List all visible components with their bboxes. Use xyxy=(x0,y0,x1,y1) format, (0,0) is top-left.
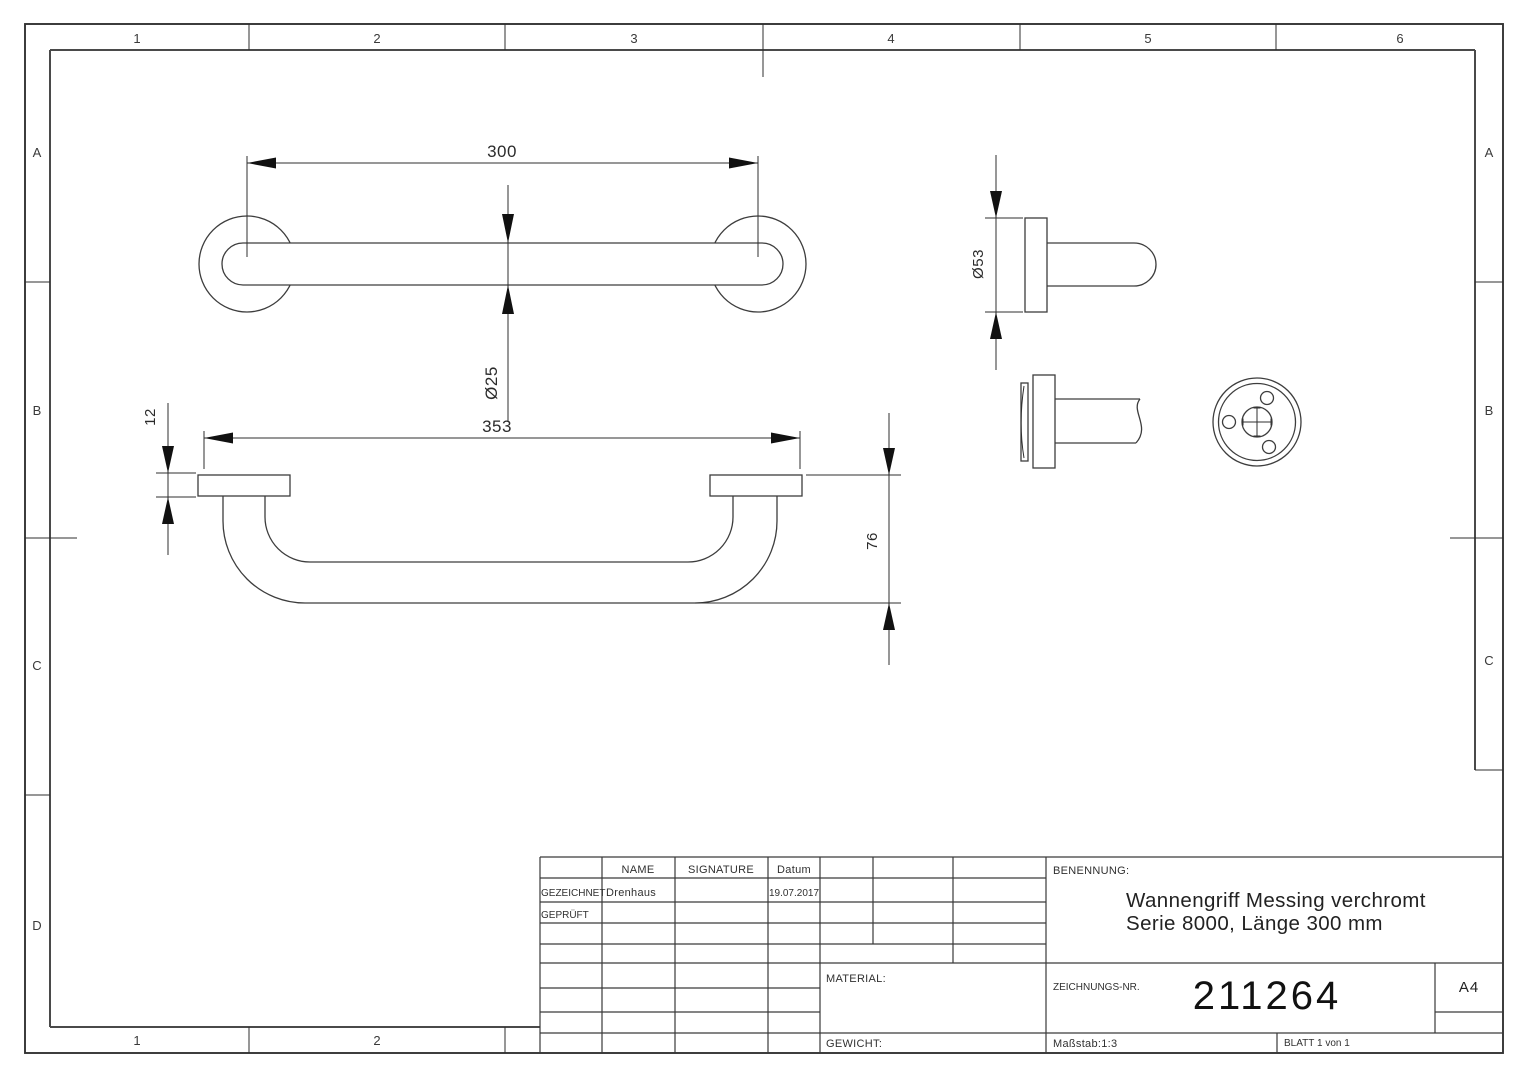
title-block: NAME SIGNATURE Datum GEZEICHNET Drenhaus… xyxy=(540,857,1503,1053)
drawing-number: 211264 xyxy=(1193,974,1342,1018)
dimension-300: 300 xyxy=(247,142,758,257)
zone-label-right-c: C xyxy=(1484,653,1493,668)
flange-body xyxy=(1033,375,1055,468)
left-wall-plate xyxy=(198,475,290,496)
zone-label-top-5: 5 xyxy=(1144,31,1151,46)
arrow-down xyxy=(162,446,174,473)
part-title-line2: Serie 8000, Länge 300 mm xyxy=(1126,912,1383,935)
dimension-text-300: 300 xyxy=(487,142,517,161)
zone-label-left-c: C xyxy=(32,658,41,673)
col-header-signature: SIGNATURE xyxy=(688,864,754,876)
drawing-no-label: ZEICHNUNGS-NR. xyxy=(1053,982,1140,993)
zone-label-top-6: 6 xyxy=(1396,31,1403,46)
phillips-cross-icon xyxy=(1243,408,1271,436)
title-block-vlines xyxy=(602,857,1435,1053)
mount-hole-3 xyxy=(1263,441,1276,454)
dimension-76: 76 xyxy=(695,413,901,665)
benennung-label: BENENNUNG: xyxy=(1053,865,1129,877)
row-checked-label: GEPRÜFT xyxy=(541,909,589,921)
arrow-up xyxy=(990,312,1002,339)
col-header-date: Datum xyxy=(777,864,811,876)
zone-label-right-b: B xyxy=(1485,403,1494,418)
arrow-down xyxy=(990,191,1002,218)
grab-bar-body xyxy=(222,243,783,285)
dimension-text-12: 12 xyxy=(142,408,159,426)
drawing-sheet: 1 2 3 4 5 6 1 2 A B C D A B C 300 Ø25 xyxy=(0,0,1528,1080)
row-drawn-name: Drenhaus xyxy=(606,887,656,899)
dimension-text-dia25: Ø25 xyxy=(482,366,501,400)
arrow-right xyxy=(771,433,800,444)
title-block-outline xyxy=(540,857,1503,1053)
extension-lines-12 xyxy=(156,473,196,497)
mount-hole-1 xyxy=(1261,392,1274,405)
arrow-down xyxy=(502,214,514,243)
dimension-12: 12 xyxy=(142,403,196,555)
dimension-text-76: 76 xyxy=(864,532,881,550)
scale-label: Maßstab:1:3 xyxy=(1053,1038,1117,1050)
arrow-up xyxy=(162,497,174,524)
bar-end-side xyxy=(1047,243,1156,286)
dimension-dia25: Ø25 xyxy=(482,185,514,422)
arrow-up xyxy=(883,603,895,630)
side-view xyxy=(1025,218,1156,312)
dimension-text-dia53: Ø53 xyxy=(970,249,987,279)
arrow-right xyxy=(729,158,758,169)
material-label: MATERIAL: xyxy=(826,973,886,985)
arrow-up xyxy=(502,285,514,314)
row-drawn-date: 19.07.2017 xyxy=(769,888,819,899)
technical-drawing-canvas: 1 2 3 4 5 6 1 2 A B C D A B C 300 Ø25 xyxy=(0,0,1528,1080)
arrow-left xyxy=(247,158,276,169)
break-line xyxy=(1136,399,1142,443)
zone-label-left-a: A xyxy=(33,145,42,160)
bar-inner-profile xyxy=(265,496,733,562)
paper-format: A4 xyxy=(1459,979,1479,996)
arrow-down xyxy=(883,448,895,475)
front-view xyxy=(198,475,802,603)
zone-label-top-4: 4 xyxy=(887,31,894,46)
top-view xyxy=(199,216,806,312)
arrow-left xyxy=(204,433,233,444)
row-drawn-label: GEZEICHNET xyxy=(541,888,605,899)
mount-hole-2 xyxy=(1223,416,1236,429)
extension-lines-dia53 xyxy=(985,218,1023,312)
flange-face-view xyxy=(1213,378,1301,466)
extension-lines-300 xyxy=(247,156,758,257)
zone-label-left-b: B xyxy=(33,403,42,418)
sheet-info-label: BLATT 1 von 1 xyxy=(1284,1038,1350,1049)
part-title-line1: Wannengriff Messing verchromt xyxy=(1126,889,1426,912)
right-wall-plate xyxy=(710,475,802,496)
right-zone-ticks xyxy=(1475,282,1503,770)
flange-plate-side xyxy=(1025,218,1047,312)
zone-label-top-1: 1 xyxy=(133,31,140,46)
extension-lines-353 xyxy=(204,431,800,469)
dimension-text-353: 353 xyxy=(482,417,512,436)
zone-label-top-2: 2 xyxy=(373,31,380,46)
zone-label-left-d: D xyxy=(32,918,41,933)
col-header-name: NAME xyxy=(622,864,655,876)
zone-label-bottom-2: 2 xyxy=(373,1033,380,1048)
zone-label-right-a: A xyxy=(1485,145,1494,160)
zone-label-bottom-1: 1 xyxy=(133,1033,140,1048)
mount-detail-view xyxy=(1021,375,1142,468)
wall-rosette xyxy=(1021,383,1028,461)
inner-frame xyxy=(50,50,1475,1027)
bar-outer-profile xyxy=(223,496,777,603)
dimension-353: 353 xyxy=(204,417,800,469)
bar-stub-lines xyxy=(1055,399,1140,443)
zone-label-top-3: 3 xyxy=(630,31,637,46)
weight-label: GEWICHT: xyxy=(826,1038,882,1050)
dimension-dia53: Ø53 xyxy=(970,155,1023,370)
